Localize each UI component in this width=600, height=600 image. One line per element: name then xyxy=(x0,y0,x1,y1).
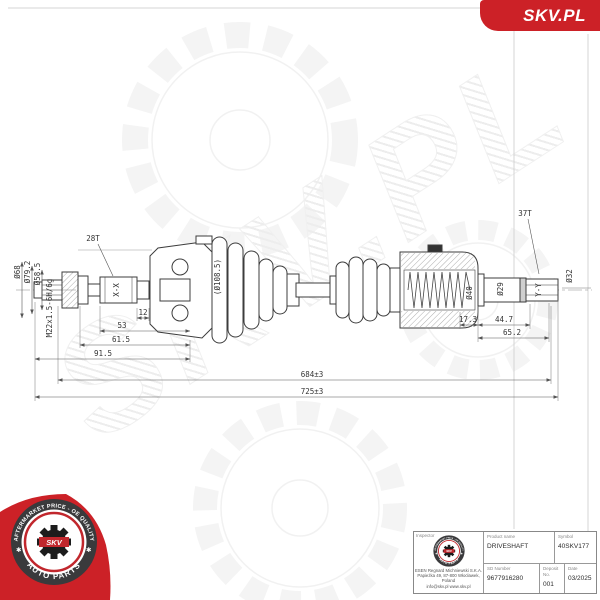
stamp-center-text: SKV xyxy=(46,538,62,547)
date-value: 03/2025 xyxy=(568,575,593,583)
dim-label-boot-dia: (Ø108.5) xyxy=(213,259,222,295)
product-name-value: DRIVESHAFT xyxy=(487,543,551,551)
dim-label-37t: 37T xyxy=(518,209,532,218)
dim-label-d32: Ø32 xyxy=(565,269,574,283)
dim-label-53: 53 xyxy=(117,321,126,330)
date-cell: Date 03/2025 xyxy=(564,564,596,593)
dim-label-17-3: 17.3 xyxy=(459,315,477,324)
dim-label-thread: M22x1.5-6H/6g xyxy=(45,279,54,338)
dim-label-12: 12 xyxy=(138,308,147,317)
title-block: Inspector ESEN Regnard Michniewski S.K.A… xyxy=(413,531,597,594)
stamp-star-left: ✱ xyxy=(16,546,22,554)
dim-label-725: 725±3 xyxy=(301,387,324,396)
drawing-sheet: SKV.PL xyxy=(0,0,600,600)
dim-label-91-5: 91.5 xyxy=(94,349,112,358)
dim-label-28t: 28T xyxy=(86,234,100,243)
dim-label-d58: Ø58.5 xyxy=(33,263,42,286)
section-label-xx: X-X xyxy=(112,283,121,297)
dim-label-65-2: 65.2 xyxy=(503,328,521,337)
section-label-yy: Y-Y xyxy=(534,283,543,297)
brand-badge: SKV.PL xyxy=(480,0,600,31)
product-name-cell: Product name DRIVESHAFT xyxy=(484,532,554,563)
dim-label-d29: Ø29 xyxy=(496,282,505,296)
deposit-value: 001 xyxy=(543,581,561,589)
deposit-cell: Deposit No. 001 xyxy=(539,564,564,593)
symbol-value: 40SKV177 xyxy=(558,543,593,551)
title-block-stamp xyxy=(433,535,465,567)
dim-label-44-7: 44.7 xyxy=(495,315,513,324)
dim-label-d79: Ø79.2 xyxy=(23,261,32,284)
symbol-cell: Symbol 40SKV177 xyxy=(554,532,596,563)
title-block-inspector-cell: Inspector ESEN Regnard Michniewski S.K.A… xyxy=(414,532,484,593)
dim-label-61-5: 61.5 xyxy=(112,335,130,344)
dim-label-684: 684±3 xyxy=(301,370,324,379)
inspector-label: Inspector xyxy=(416,533,435,539)
company-address: ESEN Regnard Michniewski S.K.A. Papieżka… xyxy=(414,568,483,589)
dim-label-d68: Ø68 xyxy=(13,265,22,279)
stamp-star-right: ✱ xyxy=(86,546,92,554)
quality-stamp: AFTERMARKET PRICE - OE QUALITY AUTO PART… xyxy=(10,498,98,586)
stamp-gear-icon: SKV xyxy=(37,525,71,559)
witness-lines xyxy=(35,288,591,401)
dim-label-d40: Ø40 xyxy=(465,286,474,300)
sd-number-value: 9677916280 xyxy=(487,575,536,583)
sd-number-cell: SD Number 9677916280 xyxy=(484,564,539,593)
brand-badge-text: SKV.PL xyxy=(523,6,586,26)
